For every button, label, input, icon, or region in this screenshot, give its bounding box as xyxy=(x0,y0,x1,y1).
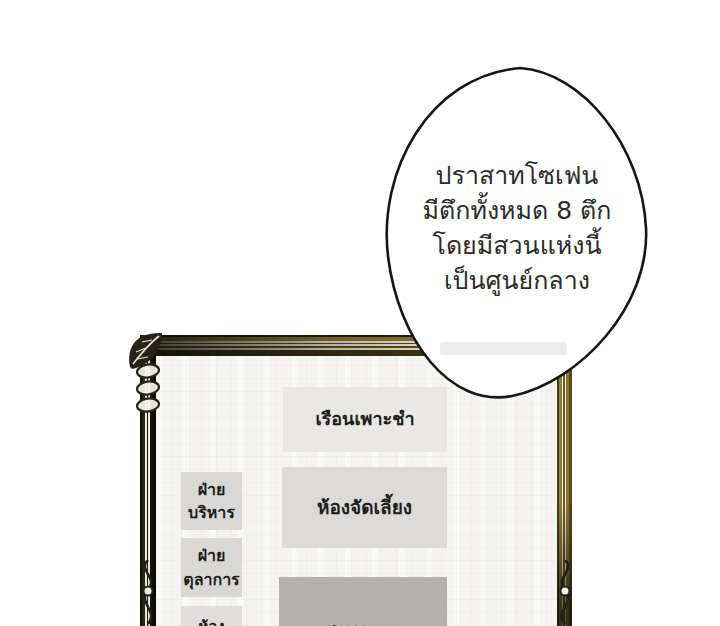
bubble-line: มีตึกทั้งหมด 8 ตึก xyxy=(392,193,642,228)
scroll-ornament-icon xyxy=(551,560,579,626)
building-label: ห้อง xyxy=(198,606,224,626)
speech-bubble-text: ปราสาทโซเฟน มีตึกทั้งหมด 8 ตึก โดยมีสวนแ… xyxy=(392,158,642,298)
scroll-ornament-icon xyxy=(134,560,162,626)
building-label: เรือนเพาะชำ xyxy=(315,406,414,432)
comic-panel: เรือนเพาะชำ ฝ่าย บริหาร ห้องจัดเลี้ยง ฝ่… xyxy=(0,0,720,626)
building-box-admin: ฝ่าย บริหาร xyxy=(181,472,242,530)
bubble-line: ปราสาทโซเฟน xyxy=(392,158,642,193)
building-box-central-garden: สวนกลาง xyxy=(279,577,447,626)
building-label: ฝ่าย ตุลาการ xyxy=(183,544,239,590)
building-box-room-partial: ห้อง xyxy=(181,606,242,626)
building-label-line: ฝ่าย xyxy=(188,478,235,501)
building-label-line: ฝ่าย xyxy=(183,544,239,567)
building-box-judicial: ฝ่าย ตุลาการ xyxy=(181,538,242,597)
building-label: สวนกลาง xyxy=(324,577,402,626)
frame-shadow-through-bubble xyxy=(440,342,567,355)
building-box-banquet: ห้องจัดเลี้ยง xyxy=(282,467,447,548)
building-label: ฝ่าย บริหาร xyxy=(188,478,235,524)
building-label-line: บริหาร xyxy=(188,501,235,524)
coil-ornament-icon xyxy=(134,360,162,426)
building-label: ห้องจัดเลี้ยง xyxy=(317,494,412,522)
bubble-line: โดยมีสวนแห่งนี้ xyxy=(392,228,642,263)
building-label-line: ตุลาการ xyxy=(183,568,239,591)
bubble-line: เป็นศูนย์กลาง xyxy=(392,263,642,298)
